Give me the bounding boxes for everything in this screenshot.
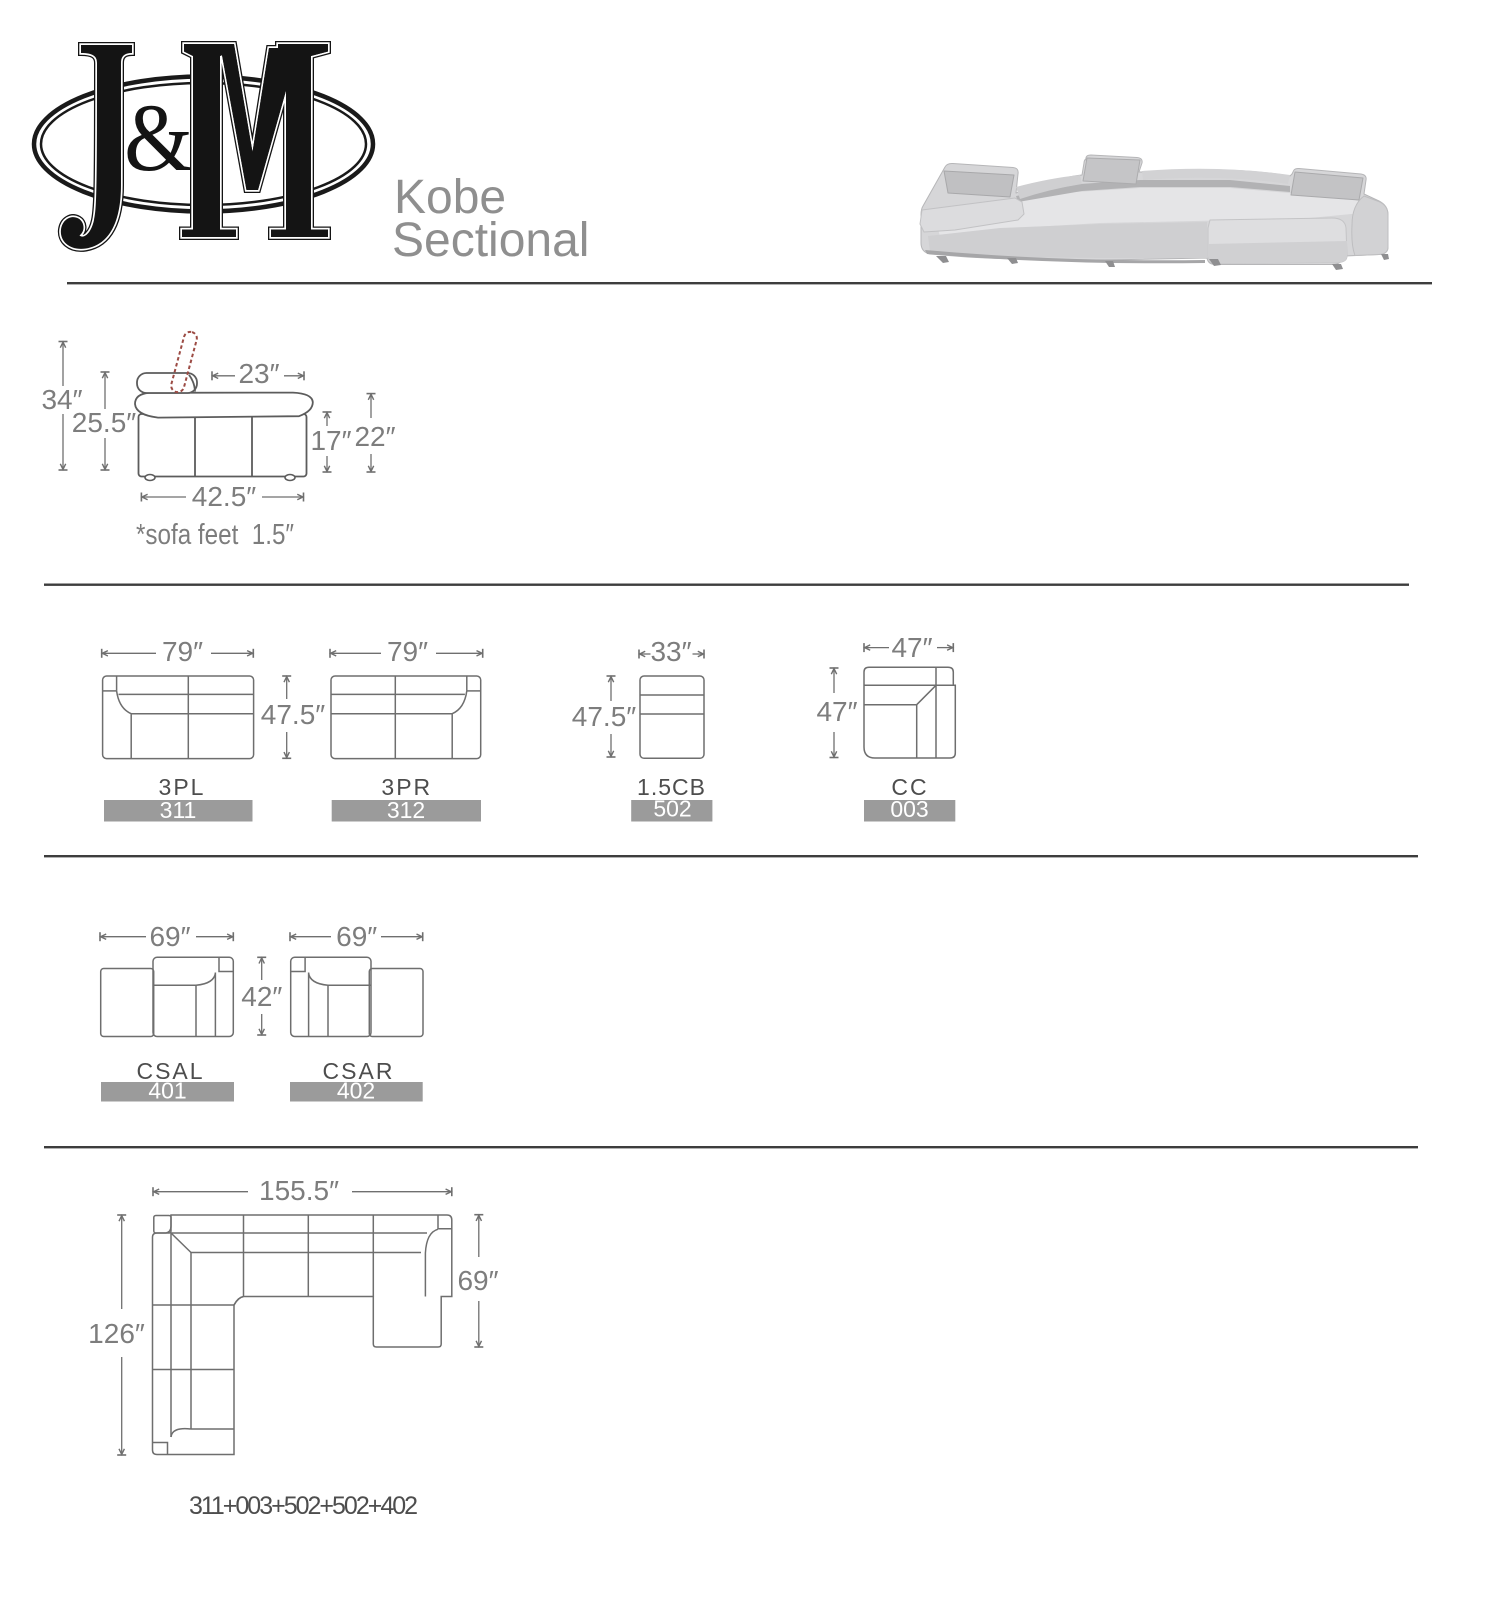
svg-text:401: 401	[148, 1078, 186, 1104]
svg-text:79″: 79″	[162, 636, 203, 667]
svg-text:402: 402	[337, 1078, 375, 1104]
svg-text:311: 311	[160, 797, 197, 823]
svg-text:*sofa feet 1.5″: *sofa feet 1.5″	[136, 519, 294, 551]
svg-text:33″: 33″	[650, 636, 691, 667]
svg-text:47″: 47″	[891, 632, 932, 663]
svg-text:42″: 42″	[241, 981, 282, 1012]
svg-text:155.5″: 155.5″	[259, 1175, 339, 1206]
svg-text:69″: 69″	[149, 921, 190, 952]
svg-text:69″: 69″	[336, 921, 377, 952]
svg-text:003: 003	[890, 796, 928, 822]
svg-text:47.5″: 47.5″	[261, 699, 325, 730]
svg-text:23″: 23″	[238, 358, 279, 389]
svg-text:Sectional: Sectional	[392, 214, 589, 267]
svg-text:502: 502	[653, 796, 691, 822]
svg-text:42.5″: 42.5″	[192, 481, 256, 512]
svg-text:126″: 126″	[88, 1318, 145, 1349]
svg-text:&: &	[124, 85, 193, 191]
svg-text:312: 312	[387, 797, 425, 823]
svg-text:47.5″: 47.5″	[572, 701, 636, 732]
svg-text:69″: 69″	[457, 1265, 498, 1296]
svg-text:22″: 22″	[354, 421, 395, 452]
svg-text:25.5″: 25.5″	[72, 407, 136, 438]
svg-text:79″: 79″	[387, 636, 428, 667]
svg-text:311+003+502+502+402: 311+003+502+502+402	[189, 1492, 417, 1520]
svg-text:47″: 47″	[816, 696, 857, 727]
svg-text:17″: 17″	[310, 425, 351, 456]
